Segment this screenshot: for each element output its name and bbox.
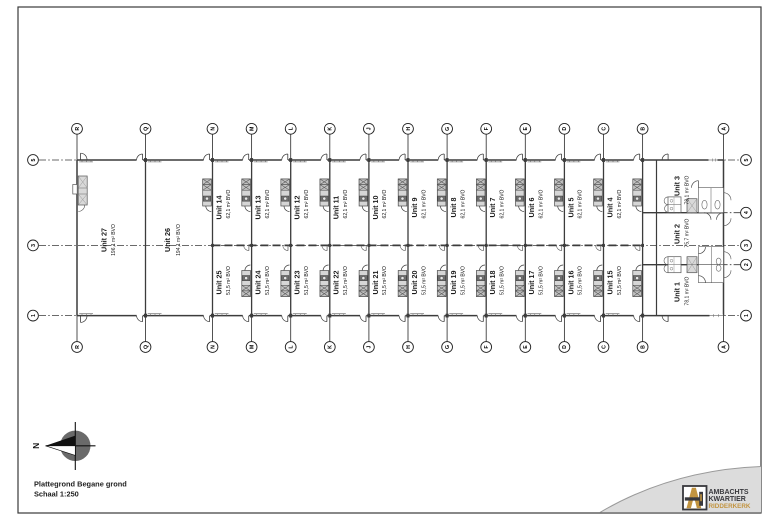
svg-text:Unit 10: Unit 10: [371, 196, 380, 220]
svg-text:Unit 23: Unit 23: [293, 271, 302, 295]
svg-text:A: A: [721, 127, 727, 131]
svg-text:F: F: [484, 345, 490, 348]
svg-text:E: E: [523, 345, 529, 349]
svg-text:2: 2: [744, 263, 750, 266]
svg-text:Unit 3: Unit 3: [673, 176, 682, 196]
svg-text:Unit 8: Unit 8: [449, 198, 458, 218]
svg-text:Unit 7: Unit 7: [488, 198, 497, 218]
svg-text:G: G: [445, 127, 451, 131]
svg-text:Unit 12: Unit 12: [293, 196, 302, 220]
svg-text:62,1 m² BVO: 62,1 m² BVO: [382, 189, 388, 218]
svg-text:Unit 6: Unit 6: [527, 198, 536, 218]
svg-text:Q: Q: [143, 345, 149, 349]
svg-text:J: J: [367, 345, 373, 348]
svg-text:51,5 m² BVO: 51,5 m² BVO: [226, 266, 232, 295]
svg-text:Unit 4: Unit 4: [605, 198, 614, 218]
svg-text:Unit 20: Unit 20: [410, 271, 419, 295]
svg-text:Unit 21: Unit 21: [371, 271, 380, 295]
svg-text:Unit 22: Unit 22: [332, 271, 341, 295]
svg-text:R: R: [75, 127, 81, 131]
svg-text:M: M: [249, 345, 255, 349]
svg-text:Unit 1: Unit 1: [673, 282, 682, 302]
svg-text:Unit 11: Unit 11: [332, 196, 341, 220]
svg-text:51,5 m² BVO: 51,5 m² BVO: [382, 266, 388, 295]
svg-text:E: E: [523, 127, 529, 131]
svg-text:62,1 m² BVO: 62,1 m² BVO: [539, 189, 545, 218]
svg-text:4: 4: [744, 211, 750, 214]
svg-text:5: 5: [744, 158, 750, 161]
svg-text:B: B: [640, 127, 646, 131]
svg-text:N: N: [31, 443, 41, 449]
svg-text:Unit 24: Unit 24: [254, 271, 263, 295]
svg-text:Plattegrond Begane grond: Plattegrond Begane grond: [34, 480, 127, 489]
svg-text:B: B: [640, 345, 646, 349]
svg-text:R: R: [75, 345, 81, 349]
svg-text:H: H: [406, 127, 412, 131]
svg-text:AMBACHTS: AMBACHTS: [709, 489, 749, 496]
svg-text:Unit 25: Unit 25: [214, 271, 223, 295]
svg-text:J: J: [367, 127, 373, 130]
svg-text:N: N: [210, 127, 216, 131]
svg-text:62,1 m² BVO: 62,1 m² BVO: [578, 189, 584, 218]
svg-text:Unit 19: Unit 19: [449, 271, 458, 295]
svg-text:62,1 m² BVO: 62,1 m² BVO: [304, 189, 310, 218]
svg-text:51,5 m² BVO: 51,5 m² BVO: [343, 266, 349, 295]
svg-text:62,1 m² BVO: 62,1 m² BVO: [500, 189, 506, 218]
svg-text:3: 3: [744, 244, 750, 247]
svg-text:Unit 18: Unit 18: [488, 271, 497, 295]
svg-text:1: 1: [31, 314, 37, 317]
svg-text:Unit 9: Unit 9: [410, 198, 419, 218]
svg-text:Unit 15: Unit 15: [605, 271, 614, 295]
svg-text:H: H: [406, 345, 412, 349]
svg-text:Q: Q: [143, 127, 149, 131]
svg-text:51,5 m² BVO: 51,5 m² BVO: [539, 266, 545, 295]
svg-text:C: C: [601, 345, 607, 349]
svg-text:3: 3: [31, 244, 37, 247]
svg-text:51,5 m² BVO: 51,5 m² BVO: [578, 266, 584, 295]
svg-text:Schaal 1:250: Schaal 1:250: [34, 490, 79, 499]
svg-text:Unit 16: Unit 16: [566, 271, 575, 295]
svg-text:Unit 13: Unit 13: [254, 196, 263, 220]
svg-text:75,7 m² BVO: 75,7 m² BVO: [684, 218, 690, 247]
svg-text:78,1 m² BVO: 78,1 m² BVO: [684, 175, 690, 204]
svg-text:Unit 5: Unit 5: [566, 198, 575, 218]
svg-text:K: K: [328, 345, 334, 349]
svg-text:D: D: [562, 345, 568, 349]
svg-text:194,1 m² BVO: 194,1 m² BVO: [176, 224, 182, 256]
svg-text:51,5 m² BVO: 51,5 m² BVO: [617, 266, 623, 295]
svg-text:62,1 m² BVO: 62,1 m² BVO: [226, 189, 232, 218]
svg-text:D: D: [562, 127, 568, 131]
svg-text:Unit 17: Unit 17: [527, 271, 536, 295]
svg-text:62,1 m² BVO: 62,1 m² BVO: [617, 189, 623, 218]
svg-text:F: F: [484, 127, 490, 130]
svg-text:51,5 m² BVO: 51,5 m² BVO: [500, 266, 506, 295]
svg-text:78,1 m² BVO: 78,1 m² BVO: [684, 276, 690, 305]
svg-text:51,5 m² BVO: 51,5 m² BVO: [304, 266, 310, 295]
svg-text:196,1 m² BVO: 196,1 m² BVO: [111, 224, 117, 256]
svg-text:N: N: [210, 345, 216, 349]
svg-text:62,1 m² BVO: 62,1 m² BVO: [460, 189, 466, 218]
svg-text:Unit 26: Unit 26: [163, 228, 172, 252]
svg-text:K: K: [328, 127, 334, 131]
svg-text:62,1 m² BVO: 62,1 m² BVO: [343, 189, 349, 218]
svg-text:62,1 m² BVO: 62,1 m² BVO: [421, 189, 427, 218]
svg-text:Unit 14: Unit 14: [214, 196, 223, 220]
svg-text:51,5 m² BVO: 51,5 m² BVO: [265, 266, 271, 295]
svg-text:A: A: [721, 345, 727, 349]
svg-text:1: 1: [744, 314, 750, 317]
svg-text:Unit 2: Unit 2: [673, 224, 682, 244]
svg-text:M: M: [249, 127, 255, 131]
svg-text:C: C: [601, 127, 607, 131]
svg-text:Unit 27: Unit 27: [100, 228, 109, 252]
svg-text:51,5 m² BVO: 51,5 m² BVO: [460, 266, 466, 295]
svg-text:5: 5: [31, 158, 37, 161]
svg-text:RIDDERKERK: RIDDERKERK: [709, 503, 751, 510]
svg-text:G: G: [445, 345, 451, 349]
svg-text:51,5 m² BVO: 51,5 m² BVO: [421, 266, 427, 295]
svg-text:62,1 m² BVO: 62,1 m² BVO: [265, 189, 271, 218]
svg-text:KWARTIER: KWARTIER: [709, 496, 746, 503]
